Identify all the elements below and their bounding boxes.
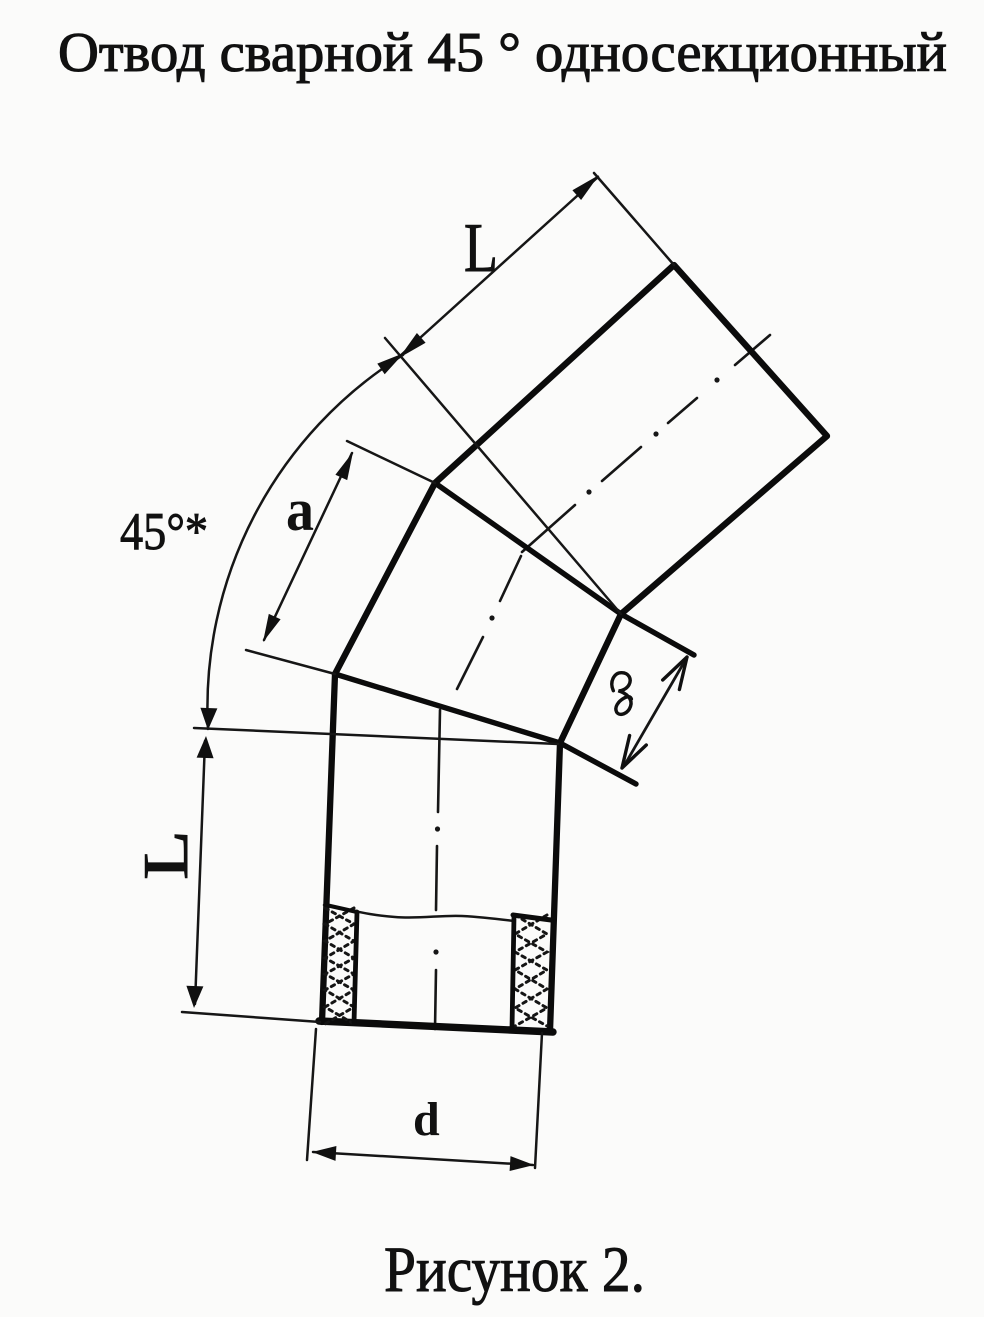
svg-text:d: d [413, 1093, 440, 1146]
svg-text:L: L [130, 830, 201, 880]
svg-text:L: L [464, 210, 498, 287]
svg-text:a: a [286, 477, 314, 543]
svg-text:Отвод сварной 45 ° односекцион: Отвод сварной 45 ° односекционный [58, 22, 947, 84]
svg-text:45°*: 45°* [120, 503, 208, 561]
svg-text:Рисунок 2.: Рисунок 2. [384, 1234, 645, 1306]
